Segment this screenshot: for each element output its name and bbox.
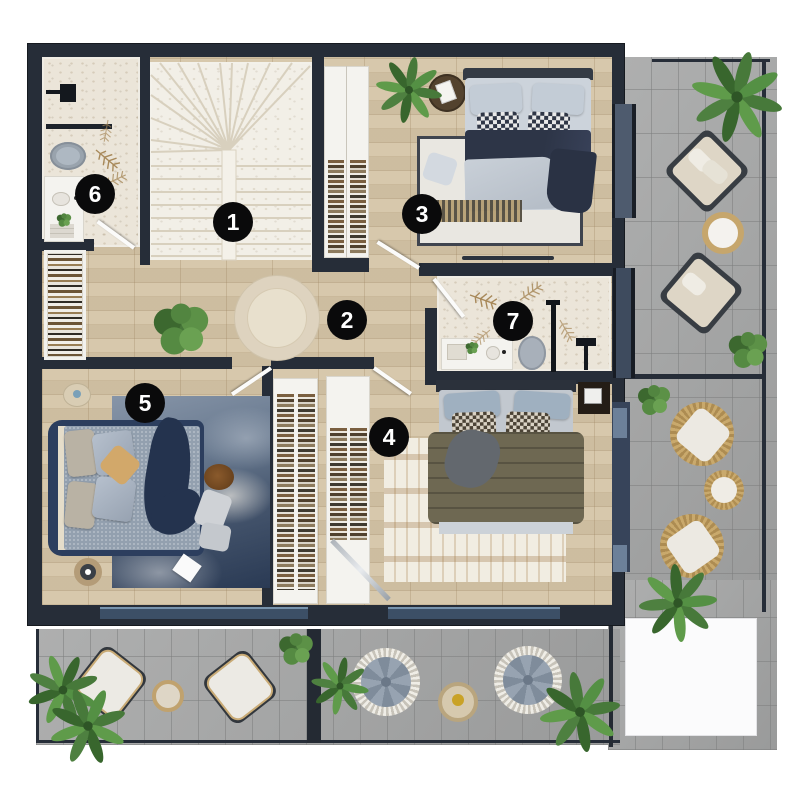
round-rug-inner <box>248 289 306 347</box>
skylight-roof <box>625 618 757 736</box>
window <box>613 545 627 572</box>
shower-glass <box>46 124 112 129</box>
railing <box>652 59 770 62</box>
window <box>613 408 627 438</box>
wicker-table-top <box>711 477 737 503</box>
wardrobe-divider <box>346 66 347 258</box>
woven-stool <box>204 464 234 490</box>
toilet-lid <box>56 147 80 165</box>
pillow <box>469 83 522 116</box>
daybed-cushion-center <box>381 677 391 687</box>
room-marker-bathroom[interactable]: 7 <box>493 301 533 341</box>
railing <box>624 374 764 379</box>
wall <box>312 57 324 272</box>
blanket-drape <box>545 148 597 214</box>
pouf-dot <box>85 569 91 575</box>
shower-head <box>60 84 76 102</box>
shower-arm <box>46 90 60 94</box>
hanging-clothes <box>328 160 344 254</box>
window <box>100 607 308 619</box>
railing <box>36 629 39 743</box>
floor-lamp-pole <box>584 344 588 370</box>
hanging-clothes <box>330 428 347 540</box>
window <box>388 607 560 619</box>
wall <box>419 263 612 276</box>
nightstand-decor <box>584 388 602 404</box>
shower-column <box>551 300 556 372</box>
room-marker-hallway-landing[interactable]: 2 <box>327 300 367 340</box>
railing <box>762 59 766 612</box>
towels <box>50 224 74 238</box>
hanging-clothes <box>350 428 367 540</box>
railing <box>609 625 613 747</box>
wall <box>140 57 150 265</box>
hanging-clothes <box>277 394 294 590</box>
floor-pillow <box>198 522 232 553</box>
sink <box>486 346 500 360</box>
bed-foot-sheet <box>439 522 573 534</box>
room-marker-staircase[interactable]: 1 <box>213 202 253 242</box>
shower-head <box>546 300 560 305</box>
side-table <box>152 680 184 712</box>
coffee-table <box>702 212 744 254</box>
window <box>612 104 636 218</box>
room-marker-bathroom[interactable]: 6 <box>75 174 115 214</box>
shoe-cabinet <box>44 250 86 360</box>
room-marker-master-bedroom[interactable]: 5 <box>125 383 165 423</box>
terrace-divider <box>307 629 321 743</box>
runner-mat <box>436 200 522 222</box>
hanging-clothes <box>298 394 315 590</box>
table-decor <box>452 694 464 706</box>
room-marker-bedroom[interactable]: 3 <box>402 194 442 234</box>
pillow <box>531 83 584 116</box>
toilet <box>518 336 546 370</box>
floor-plan: 1234567 <box>0 0 800 800</box>
wall <box>312 258 369 272</box>
sink <box>52 192 70 206</box>
tray <box>447 344 467 360</box>
faucet <box>502 350 506 354</box>
pillow <box>91 475 136 522</box>
railing <box>36 740 620 743</box>
daybed-cushion-center <box>523 675 533 685</box>
bench <box>462 256 554 260</box>
window <box>613 268 635 378</box>
room-marker-bedroom-with-walkin-closet[interactable]: 4 <box>369 417 409 457</box>
cup <box>73 390 81 398</box>
hanging-clothes <box>350 160 366 254</box>
